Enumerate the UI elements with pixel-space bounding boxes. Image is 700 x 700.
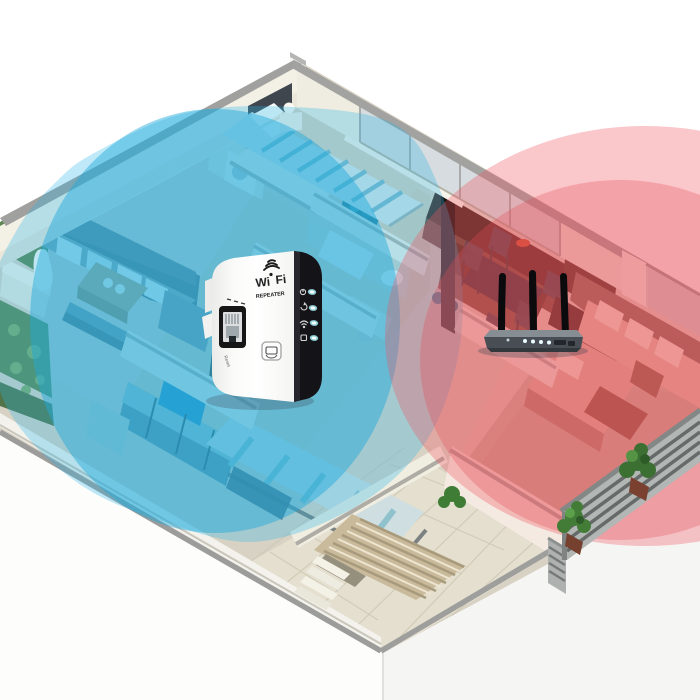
svg-text:Fi: Fi — [275, 272, 287, 287]
svg-text:Wi: Wi — [255, 275, 271, 290]
